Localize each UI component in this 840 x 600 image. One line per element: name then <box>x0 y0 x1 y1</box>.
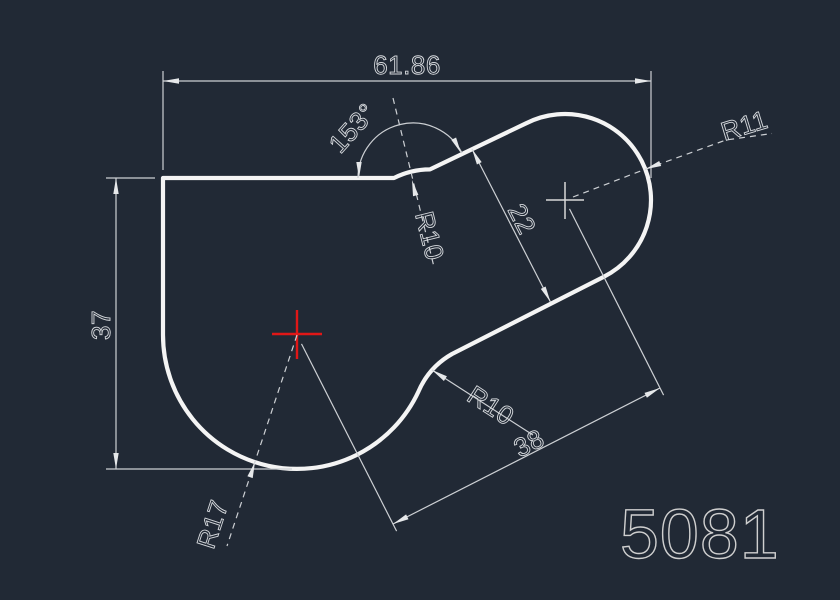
dim-neck-arrow-top <box>472 149 482 165</box>
dim-neck-width: 22 <box>472 149 551 302</box>
dim-radius-right-lobe: R11 <box>573 104 772 197</box>
dim-width-value: 61.86 <box>373 50 441 80</box>
dim-distance-extension-right <box>570 209 664 395</box>
white-cross-icon <box>546 182 584 219</box>
dim-center-distance: 38 <box>302 209 664 531</box>
center-mark-left-lobe <box>272 310 322 359</box>
dim-height-arrow-bottom <box>113 453 118 469</box>
dim-angle-arrow-right <box>451 138 461 154</box>
cad-drawing: 61.86 37 153° R10 22 R11 <box>0 0 840 600</box>
dim-distance-arrow-left <box>393 514 409 524</box>
dim-radius-left-lobe: R17 <box>191 335 297 552</box>
radius-bottom-fillet-value: R10 <box>462 379 520 431</box>
radius-left-arrow <box>247 462 255 478</box>
radius-right-leader <box>645 134 772 170</box>
dim-height: 37 <box>86 178 292 469</box>
dim-height-value: 37 <box>86 310 116 340</box>
dim-width-arrow-left <box>163 78 179 83</box>
part-outline <box>163 114 651 469</box>
dim-distance-arrow-right <box>645 388 661 398</box>
dim-angle-arc <box>358 123 462 178</box>
radius-top-fillet-value: R10 <box>409 208 450 263</box>
dim-distance-value: 38 <box>509 423 549 463</box>
dim-angle-arrow-left <box>356 162 361 178</box>
radius-right-arrow <box>645 161 661 169</box>
dim-angle-value: 153° <box>323 97 383 159</box>
radius-bottom-fillet-arrow <box>432 370 447 381</box>
part-number: 5081 <box>620 495 780 573</box>
dim-neck-value: 22 <box>502 199 542 239</box>
radius-top-fillet-arrow <box>412 180 418 196</box>
dim-radius-bottom-fillet: R10 <box>432 370 533 435</box>
cad-drawing-canvas: 61.86 37 153° R10 22 R11 <box>0 0 840 600</box>
dim-width-arrow-right <box>635 78 651 83</box>
dim-height-arrow-top <box>113 178 118 194</box>
center-mark-right-lobe <box>546 182 584 219</box>
red-cross-icon <box>272 310 322 359</box>
radius-right-inner-line <box>573 169 645 197</box>
radius-left-leader <box>227 335 297 546</box>
dim-neck-arrow-bottom <box>541 287 551 303</box>
radius-right-value: R11 <box>717 104 771 147</box>
